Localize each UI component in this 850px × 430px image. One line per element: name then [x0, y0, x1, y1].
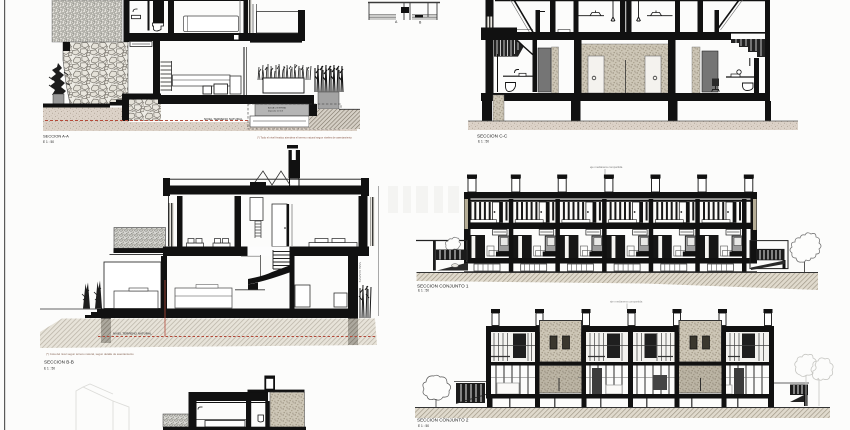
svg-text:deposito 10 m3: deposito 10 m3: [268, 110, 284, 113]
svg-text:(*) Cota del nivel segun terre: (*) Cota del nivel segun terreno natural…: [46, 352, 134, 356]
svg-text:E 1 : 50: E 1 : 50: [418, 424, 429, 428]
svg-text:E 1 : 50: E 1 : 50: [44, 367, 55, 371]
svg-text:NIVEL TERRENO NATURAL: NIVEL TERRENO NATURAL: [113, 332, 152, 336]
svg-text:E 1 : 50: E 1 : 50: [418, 289, 429, 293]
svg-text:eje medianera compartida: eje medianera compartida: [610, 300, 643, 304]
svg-text:(*) Todo el nivel freatico ate: (*) Todo el nivel freatico atendera el t…: [257, 136, 352, 140]
svg-text:E 1 : 50: E 1 : 50: [43, 140, 54, 144]
svg-text:NIVEL RASANTE: NIVEL RASANTE: [358, 262, 362, 283]
svg-text:SECCION A-A: SECCION A-A: [43, 134, 69, 139]
svg-text:E 1 : 50: E 1 : 50: [478, 140, 489, 144]
svg-text:SECCION CONJUNTO 2: SECCION CONJUNTO 2: [417, 418, 469, 423]
svg-text:AGUA CISTERNA: AGUA CISTERNA: [268, 107, 286, 110]
svg-text:SECCION C-C: SECCION C-C: [477, 134, 508, 139]
svg-text:eje medianera compartida: eje medianera compartida: [590, 165, 623, 169]
svg-text:SECCION B-B: SECCION B-B: [44, 360, 74, 365]
